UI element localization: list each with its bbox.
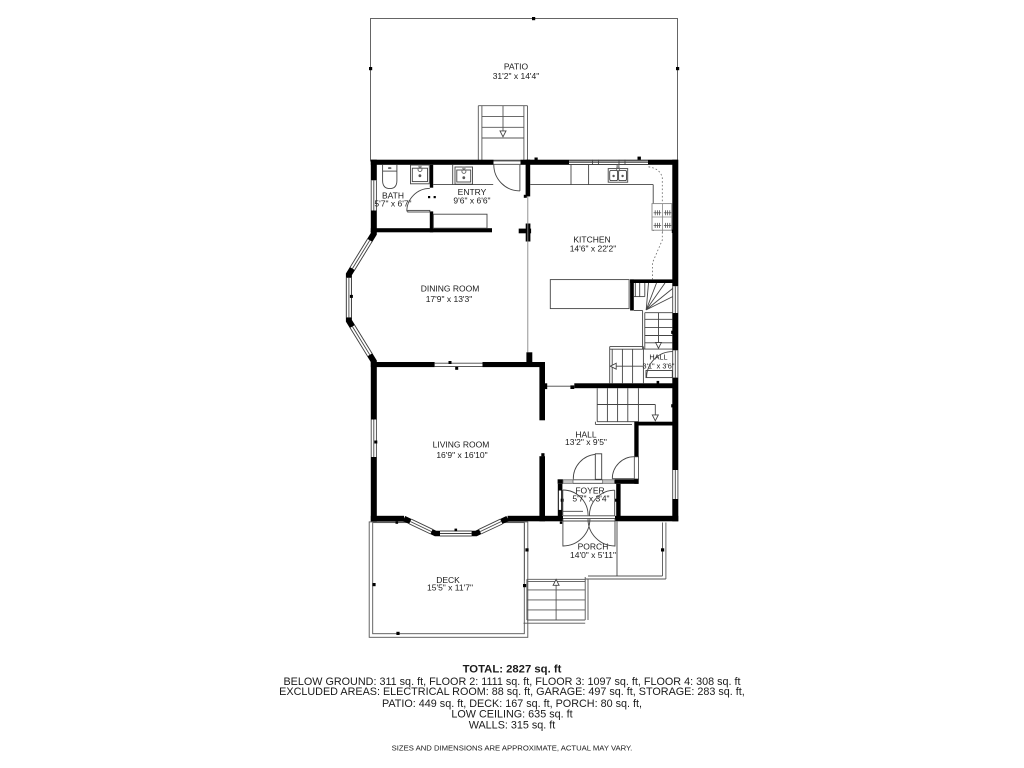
- svg-text:5'7" x 6'7": 5'7" x 6'7": [374, 199, 411, 209]
- svg-text:16'9" x 16'10": 16'9" x 16'10": [436, 450, 487, 460]
- svg-text:15'5" x 11'7": 15'5" x 11'7": [427, 583, 473, 593]
- svg-text:14'0" x 5'11": 14'0" x 5'11": [570, 550, 616, 560]
- svg-text:WALLS: 315 sq. ft: WALLS: 315 sq. ft: [469, 720, 556, 732]
- svg-text:14'6" x 22'2": 14'6" x 22'2": [570, 243, 617, 253]
- svg-text:LIVING ROOM: LIVING ROOM: [433, 439, 490, 449]
- svg-text:DINING ROOM: DINING ROOM: [421, 284, 480, 294]
- svg-text:17'9" x 13'3": 17'9" x 13'3": [426, 294, 473, 304]
- svg-text:EXCLUDED AREAS: ELECTRICAL ROO: EXCLUDED AREAS: ELECTRICAL ROOM: 88 sq. …: [279, 686, 745, 698]
- svg-text:SIZES AND DIMENSIONS ARE APPRO: SIZES AND DIMENSIONS ARE APPROXIMATE, AC…: [392, 744, 633, 753]
- svg-text:13'2" x 9'5": 13'2" x 9'5": [565, 437, 607, 447]
- svg-text:31'2" x 14'4": 31'2" x 14'4": [493, 71, 540, 81]
- svg-text:3'1" x 3'6": 3'1" x 3'6": [643, 362, 675, 371]
- svg-text:TOTAL: 2827 sq. ft: TOTAL: 2827 sq. ft: [463, 664, 562, 676]
- svg-text:HALL: HALL: [649, 352, 667, 361]
- svg-text:5'7" x 3'4": 5'7" x 3'4": [572, 494, 609, 504]
- svg-text:9'6" x 6'6": 9'6" x 6'6": [453, 196, 490, 206]
